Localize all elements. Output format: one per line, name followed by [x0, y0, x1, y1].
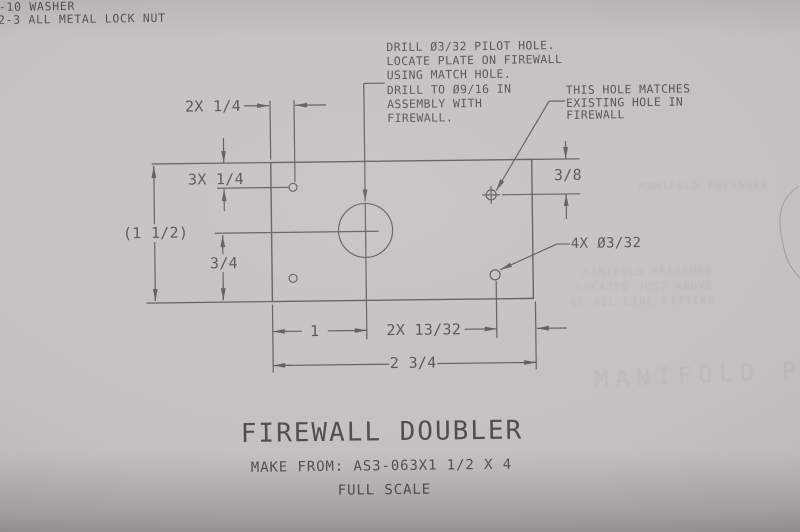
- drill-note: DRILL Ø3/32 PILOT HOLE. LOCATE PLATE ON …: [386, 38, 563, 125]
- extension-line: [294, 100, 295, 182]
- extension-line: [502, 194, 580, 195]
- vertical-centerline: [365, 203, 367, 339]
- pilot-hole-callout: 4X Ø3/32: [571, 235, 642, 252]
- extension-line: [272, 305, 273, 373]
- drawing-sheet: MANIFOLD PRESSURE MANIFOLD PRESSURE LOCA…: [0, 0, 800, 532]
- extension-line: [146, 302, 272, 304]
- scale-note: FULL SCALE: [338, 482, 428, 499]
- pilot-hole-bottom-right: [490, 270, 500, 280]
- pilot-hole-bottom-left: [289, 274, 297, 282]
- underlying-page-edge-curve: [779, 186, 800, 278]
- extension-line: [152, 163, 271, 164]
- extension-line: [270, 101, 271, 160]
- drill-note-line: LOCATE PLATE ON FIREWALL: [386, 52, 562, 68]
- horizontal-centerline: [215, 231, 379, 233]
- drawing-title: FIREWALL DOUBLER: [239, 415, 525, 448]
- leader-arrow: [364, 83, 365, 201]
- photographed-drawing-sheet: MANIFOLD PRESSURE MANIFOLD PRESSURE LOCA…: [0, 0, 800, 532]
- parts-list-line: 2-3 ALL METAL LOCK NUT: [0, 12, 166, 27]
- dim-label-right: 3/8: [547, 166, 589, 185]
- leader-arrow: [500, 244, 557, 270]
- dim-label-overall-height: (1 1/2): [122, 224, 188, 243]
- hole-note: THIS HOLE MATCHES EXISTING HOLE IN FIREW…: [566, 82, 691, 121]
- make-from-note: MAKE FROM: AS3-063X1 1/2 X 4: [250, 457, 512, 476]
- dim-label-upper-left: 3X 1/4: [186, 170, 246, 189]
- pilot-hole-top-left: [289, 183, 297, 191]
- dim-label-bottom-first: 1: [302, 322, 328, 340]
- hole-note-line: FIREWALL: [566, 108, 691, 122]
- dim-label-bottom-overall: 2 3/4: [389, 354, 437, 373]
- extension-line: [535, 301, 536, 369]
- drill-note-line: FIREWALL.: [387, 109, 563, 125]
- dim-label-lower-left: 3/4: [205, 254, 243, 272]
- dim-label-bottom-second: 2X 13/32: [383, 320, 465, 339]
- extension-line: [532, 159, 580, 160]
- dim-label-top-hole-offset: 2X 1/4: [183, 97, 243, 116]
